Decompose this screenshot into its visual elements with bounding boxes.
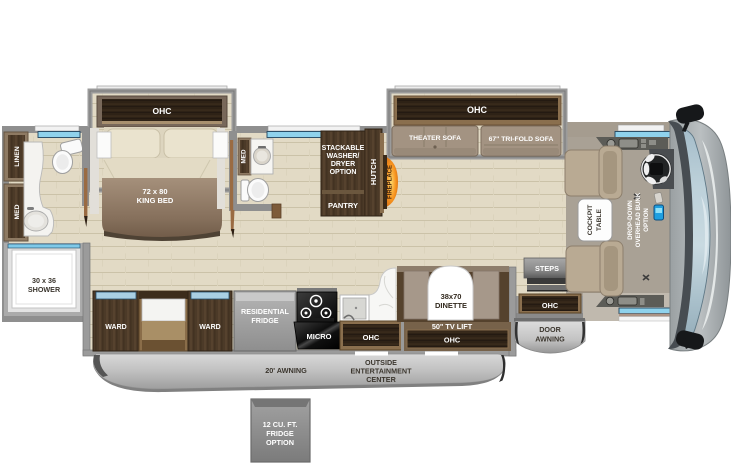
- svg-text:WARD: WARD: [105, 324, 126, 331]
- svg-text:KING BED: KING BED: [137, 196, 174, 205]
- svg-text:OHC: OHC: [467, 105, 488, 115]
- svg-text:OHC: OHC: [363, 333, 380, 342]
- svg-text:OPTION: OPTION: [330, 169, 357, 176]
- svg-text:COCKPIT: COCKPIT: [587, 204, 594, 235]
- svg-text:CENTER: CENTER: [366, 375, 396, 384]
- svg-text:OPTION: OPTION: [643, 208, 650, 232]
- svg-text:DOOR: DOOR: [539, 325, 561, 334]
- svg-text:MED: MED: [14, 204, 21, 219]
- svg-text:50" TV LIFT: 50" TV LIFT: [432, 322, 473, 331]
- svg-text:OVERHEAD BUNK: OVERHEAD BUNK: [635, 192, 642, 247]
- svg-text:LINEN: LINEN: [14, 146, 21, 166]
- svg-text:67" TRI-FOLD SOFA: 67" TRI-FOLD SOFA: [489, 136, 554, 143]
- svg-text:OPTION: OPTION: [266, 438, 294, 447]
- svg-text:STEPS: STEPS: [535, 264, 559, 273]
- svg-text:MICRO: MICRO: [307, 332, 332, 341]
- svg-text:WARD: WARD: [199, 324, 220, 331]
- svg-text:AWNING: AWNING: [535, 335, 565, 344]
- svg-text:DRYER: DRYER: [331, 161, 355, 168]
- svg-text:OHC: OHC: [542, 301, 559, 310]
- svg-text:WASHER/: WASHER/: [327, 153, 360, 160]
- svg-text:THEATER SOFA: THEATER SOFA: [409, 135, 461, 142]
- svg-text:TABLE: TABLE: [596, 208, 603, 231]
- svg-text:OHC: OHC: [153, 106, 172, 116]
- svg-text:FRIDGE: FRIDGE: [266, 429, 294, 438]
- svg-text:FIREPLACE: FIREPLACE: [388, 165, 394, 199]
- svg-text:72 x 80: 72 x 80: [142, 187, 167, 196]
- svg-text:HUTCH: HUTCH: [369, 159, 378, 185]
- svg-text:SHOWER: SHOWER: [28, 285, 61, 294]
- svg-text:38x70: 38x70: [441, 292, 462, 301]
- svg-text:PANTRY: PANTRY: [328, 201, 358, 210]
- svg-text:DINETTE: DINETTE: [435, 301, 467, 310]
- svg-text:DROP-DOWN: DROP-DOWN: [627, 200, 634, 240]
- svg-text:FRIDGE: FRIDGE: [251, 316, 278, 325]
- svg-text:RESIDENTIAL: RESIDENTIAL: [241, 307, 290, 316]
- svg-text:MED: MED: [241, 149, 248, 163]
- svg-text:STACKABLE: STACKABLE: [322, 145, 365, 152]
- svg-text:20' AWNING: 20' AWNING: [265, 366, 307, 375]
- svg-text:OHC: OHC: [444, 336, 461, 345]
- svg-text:12 CU. FT.: 12 CU. FT.: [263, 420, 298, 429]
- svg-text:30 x 36: 30 x 36: [32, 276, 56, 285]
